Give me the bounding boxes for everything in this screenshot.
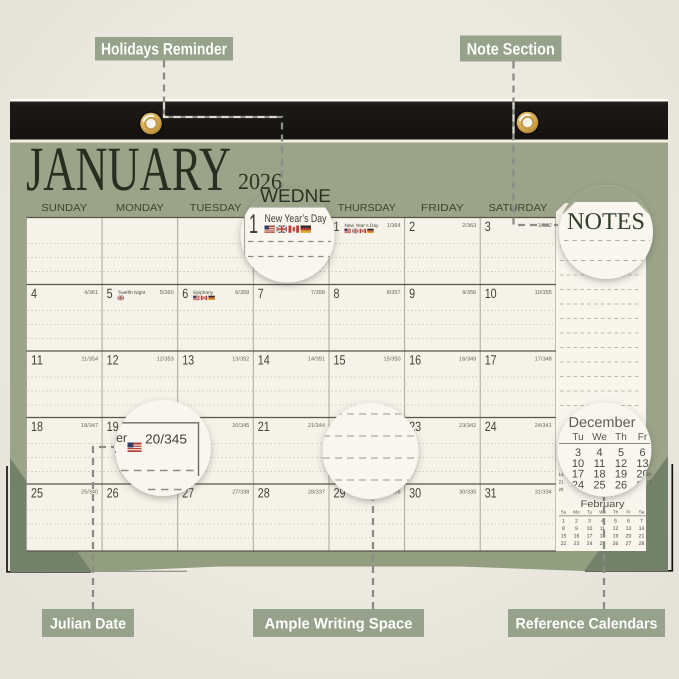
svg-text:14: 14 [558,472,564,477]
svg-text:19: 19 [613,534,619,540]
svg-text:28: 28 [558,487,564,492]
svg-text:15: 15 [334,353,346,368]
svg-text:13: 13 [182,353,194,368]
svg-text:23/342: 23/342 [459,422,476,429]
svg-text:MONDAY: MONDAY [116,203,164,214]
svg-text:Fr: Fr [626,510,631,515]
svg-text:9: 9 [409,286,415,301]
svg-text:SATURDAY: SATURDAY [489,203,548,214]
svg-text:21/344: 21/344 [308,422,325,429]
svg-text:8/357: 8/357 [387,289,401,296]
svg-text:We: We [592,432,607,443]
svg-text:20/345: 20/345 [232,422,249,429]
svg-text:20: 20 [646,472,652,477]
svg-text:24/341: 24/341 [535,422,552,429]
svg-text:24: 24 [587,541,593,547]
svg-text:1: 1 [562,519,565,525]
svg-text:Mo: Mo [573,510,580,515]
svg-text:28/337: 28/337 [308,489,325,496]
svg-text:Twelfth Night: Twelfth Night [118,290,146,296]
svg-text:1: 1 [334,219,340,234]
svg-text:Tu: Tu [572,432,583,443]
svg-text:26: 26 [107,486,119,501]
svg-text:11: 11 [31,353,43,368]
svg-text:2: 2 [575,519,578,525]
svg-text:December: December [569,415,636,431]
svg-text:16/349: 16/349 [459,356,476,363]
svg-text:2/363: 2/363 [462,222,476,229]
svg-text:28: 28 [258,486,270,501]
svg-text:12: 12 [107,353,119,368]
svg-text:Ample Writing Space: Ample Writing Space [265,615,413,632]
svg-text:February: February [581,499,625,510]
svg-text:10/355: 10/355 [535,289,552,296]
svg-text:16: 16 [574,534,580,540]
svg-text:Th: Th [613,510,619,515]
svg-text:13: 13 [626,526,632,532]
svg-text:16: 16 [409,353,421,368]
svg-text:28: 28 [639,541,645,547]
svg-text:5: 5 [107,286,113,301]
svg-text:1/364: 1/364 [387,222,401,229]
svg-text:25: 25 [593,479,605,491]
svg-text:THURSDAY: THURSDAY [338,203,396,214]
svg-text:5: 5 [614,519,617,525]
svg-text:Reference Calendars: Reference Calendars [516,615,658,632]
svg-text:27: 27 [626,541,632,547]
svg-text:Tu: Tu [587,510,593,515]
svg-text:6/359: 6/359 [235,289,249,296]
svg-text:24: 24 [485,419,497,434]
svg-text:11/354: 11/354 [81,356,98,363]
svg-text:12: 12 [613,526,619,532]
svg-text:3: 3 [485,219,491,234]
svg-text:17: 17 [587,534,593,540]
svg-text:1: 1 [249,209,258,239]
svg-text:TUESDAY: TUESDAY [190,203,242,214]
svg-text:25/340: 25/340 [81,489,98,496]
svg-text:30/335: 30/335 [459,489,476,496]
svg-text:Holidays Reminder: Holidays Reminder [101,41,227,59]
svg-text:WEDNE: WEDNE [260,185,331,206]
svg-text:4/361: 4/361 [84,289,98,296]
svg-text:14/351: 14/351 [308,356,325,363]
svg-text:13/352: 13/352 [232,356,249,363]
svg-text:10: 10 [587,526,593,532]
svg-text:7: 7 [258,286,264,301]
svg-text:Su: Su [561,510,567,515]
svg-text:21: 21 [639,534,645,540]
svg-text:22: 22 [561,541,567,547]
svg-text:SUNDAY: SUNDAY [41,203,87,214]
svg-text:27/338: 27/338 [232,489,249,496]
svg-text:7/358: 7/358 [311,289,325,296]
svg-text:17: 17 [485,353,497,368]
svg-text:Julian Date: Julian Date [50,615,126,632]
svg-text:7: 7 [640,519,643,525]
svg-text:15: 15 [561,534,567,540]
svg-text:6: 6 [182,286,188,301]
svg-text:27: 27 [646,480,652,485]
svg-text:9/356: 9/356 [462,289,476,296]
svg-text:Sa: Sa [639,510,645,515]
svg-text:21: 21 [558,480,564,485]
svg-text:14: 14 [258,353,270,368]
svg-text:15/350: 15/350 [383,356,400,363]
svg-text:20/345: 20/345 [145,432,187,447]
svg-text:2: 2 [409,219,415,234]
svg-text:30: 30 [409,486,421,501]
svg-text:Epiphany: Epiphany [193,290,214,296]
svg-text:NOTES: NOTES [567,209,645,235]
svg-text:12/353: 12/353 [157,356,174,363]
svg-text:18: 18 [31,419,43,434]
svg-text:New Year’s Day: New Year’s Day [345,223,380,229]
svg-text:Th: Th [615,432,627,443]
svg-text:We: We [599,510,606,515]
svg-text:4: 4 [31,286,37,301]
svg-text:17/348: 17/348 [535,356,552,363]
svg-text:5/360: 5/360 [160,289,174,296]
svg-text:26: 26 [615,479,627,491]
svg-text:3: 3 [588,519,591,525]
svg-text:21: 21 [258,419,270,434]
svg-text:14: 14 [639,526,645,532]
svg-text:26: 26 [613,541,619,547]
svg-text:25: 25 [31,486,43,501]
svg-text:Note Section: Note Section [467,40,555,58]
svg-text:31: 31 [485,486,497,501]
svg-text:23: 23 [574,541,580,547]
svg-text:18/347: 18/347 [81,422,98,429]
svg-text:10: 10 [485,286,497,301]
svg-text:JANUARY: JANUARY [26,134,231,204]
svg-text:19: 19 [107,419,119,434]
svg-text:8: 8 [562,526,565,532]
svg-text:8: 8 [334,286,340,301]
svg-text:31/334: 31/334 [535,489,552,496]
svg-text:20: 20 [626,534,632,540]
svg-text:New Year’s Day: New Year’s Day [265,213,327,225]
svg-text:FRIDAY: FRIDAY [421,203,464,214]
svg-text:6: 6 [627,519,630,525]
svg-text:Fr: Fr [638,432,648,443]
svg-text:9: 9 [575,526,578,532]
